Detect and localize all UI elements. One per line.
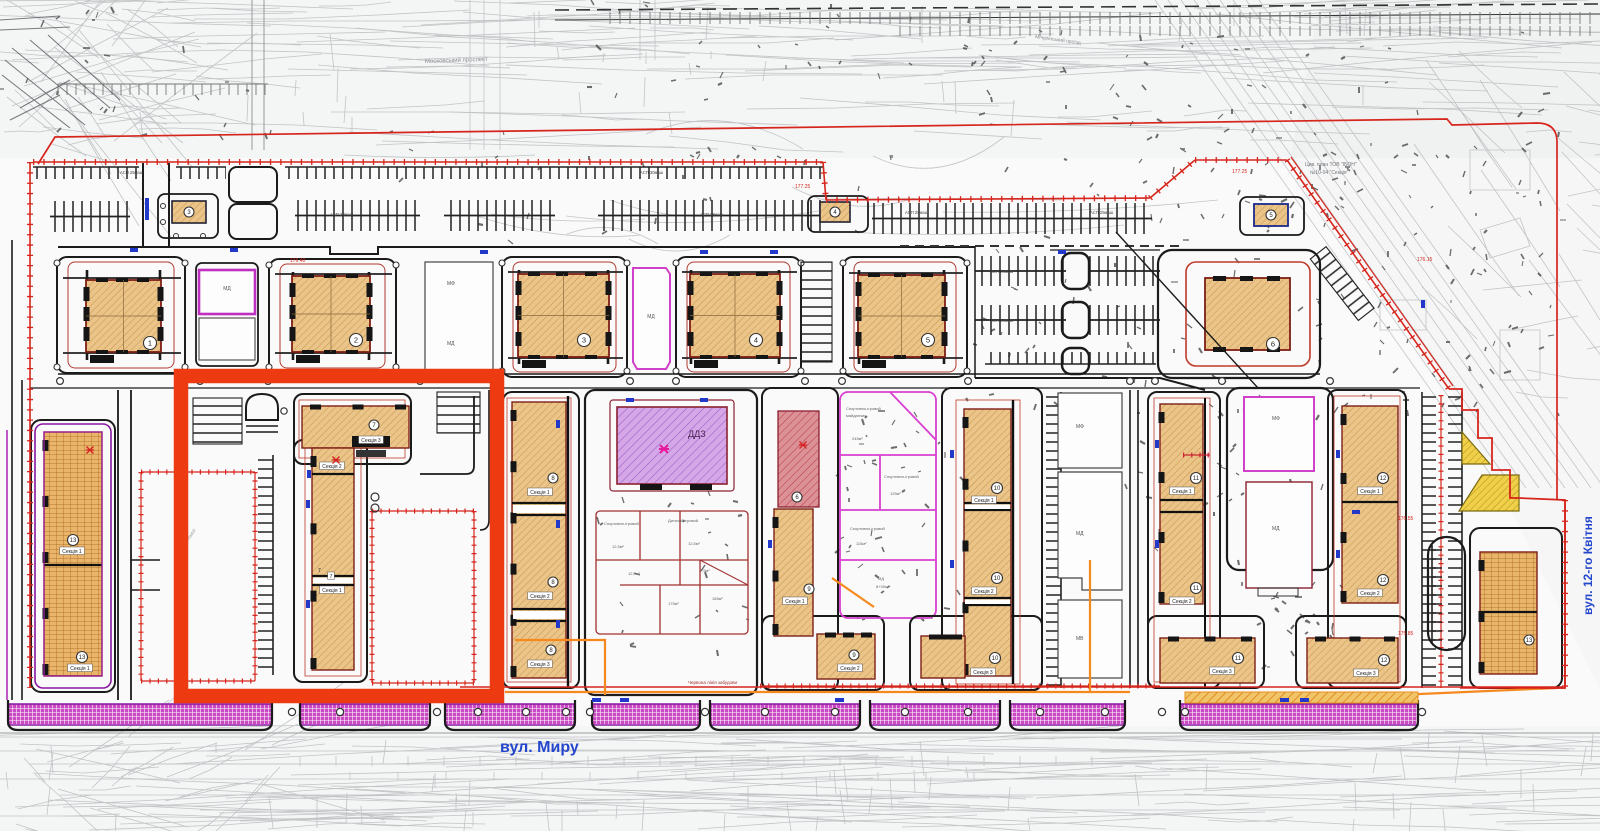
svg-text:Секція 3: Секція 3 bbox=[973, 670, 993, 676]
svg-text:Спортивно-ігровий: Спортивно-ігровий bbox=[604, 521, 639, 526]
svg-text:12: 12 bbox=[1381, 658, 1388, 664]
svg-text:245м²: 245м² bbox=[852, 436, 863, 441]
svg-text:7,5м²: 7,5м² bbox=[700, 568, 710, 573]
svg-text:майданчик: майданчик bbox=[846, 413, 866, 418]
svg-text:125м²: 125м² bbox=[890, 491, 901, 496]
svg-text:Секція 1: Секція 1 bbox=[785, 599, 805, 605]
svg-text:АСП 25маш: АСП 25маш bbox=[1090, 210, 1114, 215]
svg-text:МД: МД bbox=[1272, 526, 1280, 532]
svg-text:7: 7 bbox=[330, 574, 333, 580]
svg-text:Дитячий ігровий: Дитячий ігровий bbox=[668, 518, 698, 523]
svg-text:8+30м²: 8+30м² bbox=[876, 584, 890, 589]
svg-text:АСП 30маш: АСП 30маш bbox=[640, 170, 664, 175]
svg-text:Секція 2: Секція 2 bbox=[530, 594, 550, 600]
svg-text:АСП 25маш: АСП 25маш bbox=[905, 210, 929, 215]
svg-text:177.25: 177.25 bbox=[1232, 169, 1248, 175]
svg-text:175м²: 175м² bbox=[668, 601, 679, 606]
svg-text:13: 13 bbox=[70, 538, 77, 544]
svg-text:Секція 3: Секція 3 bbox=[530, 662, 550, 668]
svg-text:Цив. план ТОВ "ІБОН": Цив. план ТОВ "ІБОН" bbox=[1305, 162, 1357, 168]
svg-text:11: 11 bbox=[1235, 656, 1242, 662]
svg-text:11: 11 bbox=[1193, 586, 1200, 592]
svg-text:13: 13 bbox=[1526, 638, 1533, 644]
svg-text:Секція 1: Секція 1 bbox=[1172, 489, 1192, 495]
svg-text:Секція 2: Секція 2 bbox=[974, 589, 994, 595]
svg-text:МД: МД bbox=[878, 576, 884, 581]
svg-text:Секція 3: Секція 3 bbox=[1212, 669, 1232, 675]
svg-text:12: 12 bbox=[1380, 578, 1387, 584]
svg-text:5: 5 bbox=[926, 336, 930, 345]
svg-text:Червона лінія забудови: Червона лінія забудови bbox=[688, 680, 738, 685]
svg-text:МФ: МФ bbox=[1076, 424, 1084, 430]
svg-text:176.40: 176.40 bbox=[290, 258, 306, 264]
svg-text:2: 2 bbox=[354, 336, 358, 345]
svg-text:№10-04 "Секція": №10-04 "Секція" bbox=[1310, 170, 1349, 176]
svg-text:1: 1 bbox=[148, 339, 152, 348]
svg-text:12,5м²: 12,5м² bbox=[628, 571, 641, 576]
svg-text:11: 11 bbox=[1193, 476, 1200, 482]
svg-text:МФ: МФ bbox=[1272, 416, 1280, 422]
svg-text:Секція 1: Секція 1 bbox=[70, 666, 90, 672]
svg-text:Секція 1: Секція 1 bbox=[974, 498, 994, 504]
svg-text:115м²: 115м² bbox=[856, 541, 867, 546]
svg-text:Секція 2: Секція 2 bbox=[840, 666, 860, 672]
svg-text:АСП 28маш: АСП 28маш bbox=[700, 212, 724, 217]
svg-text:АСП 28маш: АСП 28маш bbox=[990, 318, 1014, 323]
svg-text:6: 6 bbox=[1271, 340, 1275, 349]
svg-text:МД: МД bbox=[1076, 531, 1084, 537]
svg-text:177.25: 177.25 bbox=[795, 184, 811, 190]
svg-text:Секція 1: Секція 1 bbox=[530, 490, 550, 496]
svg-text:МД: МД bbox=[223, 286, 231, 292]
svg-text:Спортивно-ігровий: Спортивно-ігровий bbox=[846, 406, 881, 411]
svg-text:12,5м²: 12,5м² bbox=[612, 544, 625, 549]
svg-text:10: 10 bbox=[992, 656, 999, 662]
svg-text:Спортивно-ігровий: Спортивно-ігровий bbox=[884, 474, 919, 479]
svg-text:3: 3 bbox=[582, 336, 586, 345]
svg-text:АСП 28маш: АСП 28маш bbox=[990, 269, 1014, 274]
svg-text:вул. 12-го Квітня: вул. 12-го Квітня bbox=[1581, 516, 1595, 615]
svg-text:Секція 3: Секція 3 bbox=[361, 438, 381, 444]
svg-text:10: 10 bbox=[994, 576, 1001, 582]
svg-text:Секція 1: Секція 1 bbox=[322, 588, 342, 594]
svg-text:10: 10 bbox=[994, 486, 1001, 492]
svg-text:Секція 1: Секція 1 bbox=[1360, 489, 1380, 495]
svg-text:7: 7 bbox=[318, 568, 321, 574]
svg-text:176.55: 176.55 bbox=[1398, 516, 1414, 522]
svg-text:Секція 2: Секція 2 bbox=[322, 464, 342, 470]
svg-text:12: 12 bbox=[1380, 476, 1387, 482]
svg-text:Секція 2: Секція 2 bbox=[1360, 591, 1380, 597]
svg-text:Спортивно-ігровий: Спортивно-ігровий bbox=[850, 526, 885, 531]
svg-text:МВ: МВ bbox=[1076, 636, 1084, 642]
svg-text:176.15: 176.15 bbox=[1417, 257, 1433, 263]
svg-text:МФ: МФ bbox=[447, 281, 455, 287]
svg-text:Секція 2: Секція 2 bbox=[1172, 599, 1192, 605]
svg-text:АСП 25маш: АСП 25маш bbox=[120, 170, 144, 175]
svg-text:Секція 3: Секція 3 bbox=[1356, 671, 1376, 677]
svg-text:4: 4 bbox=[754, 336, 758, 345]
svg-text:175.85: 175.85 bbox=[1398, 631, 1414, 637]
svg-text:13: 13 bbox=[79, 655, 86, 661]
svg-text:вул. Миру: вул. Миру bbox=[500, 739, 579, 756]
svg-text:АСП 28маш: АСП 28маш bbox=[330, 212, 354, 217]
svg-text:165м²: 165м² bbox=[712, 596, 723, 601]
svg-text:Секція 1: Секція 1 bbox=[62, 549, 82, 555]
svg-text:ДДЗ: ДДЗ bbox=[688, 429, 706, 439]
svg-text:МД: МД bbox=[647, 314, 655, 320]
svg-text:МД: МД bbox=[447, 341, 455, 347]
svg-text:12,5м²: 12,5м² bbox=[688, 541, 701, 546]
